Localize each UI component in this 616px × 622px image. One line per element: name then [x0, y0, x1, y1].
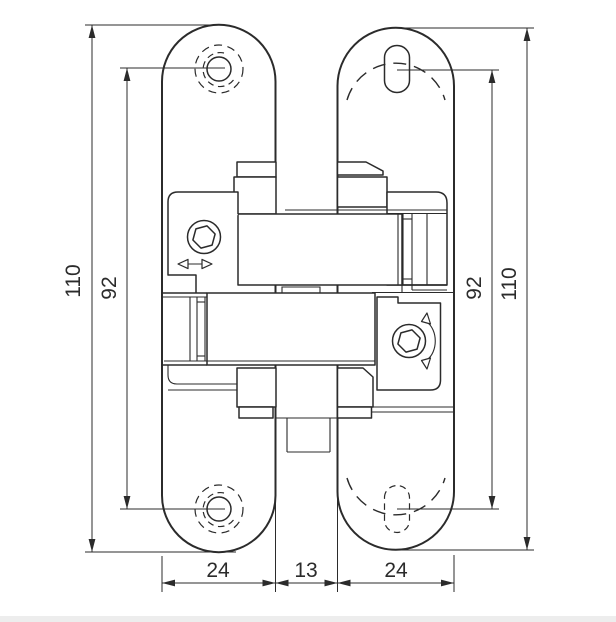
technical-drawing-canvas: 110 92 92 110 24 — [0, 0, 616, 622]
hinge-technical-drawing: 110 92 92 110 24 — [0, 0, 616, 622]
hex-adjustment-screw-lateral — [188, 221, 221, 254]
dim-label-right-92: 92 — [463, 276, 486, 299]
dim-label-right-110: 110 — [498, 267, 521, 300]
top-channel-steps — [234, 162, 387, 214]
dim-label-bottom-24-right: 24 — [384, 559, 408, 582]
footer-strip — [0, 616, 616, 622]
right-mounting-plate — [338, 28, 455, 550]
left-plate-outline — [162, 25, 276, 552]
dim-label-bottom-13: 13 — [294, 559, 317, 582]
right-plate-outline — [338, 28, 455, 550]
dim-label-left-92: 92 — [98, 276, 121, 299]
dim-label-left-110: 110 — [62, 264, 85, 297]
dim-label-bottom-24-left: 24 — [206, 559, 230, 582]
hex-adjustment-screw-rotation — [393, 325, 426, 358]
lower-hinge-arm — [207, 287, 375, 365]
left-mounting-plate — [162, 25, 276, 552]
